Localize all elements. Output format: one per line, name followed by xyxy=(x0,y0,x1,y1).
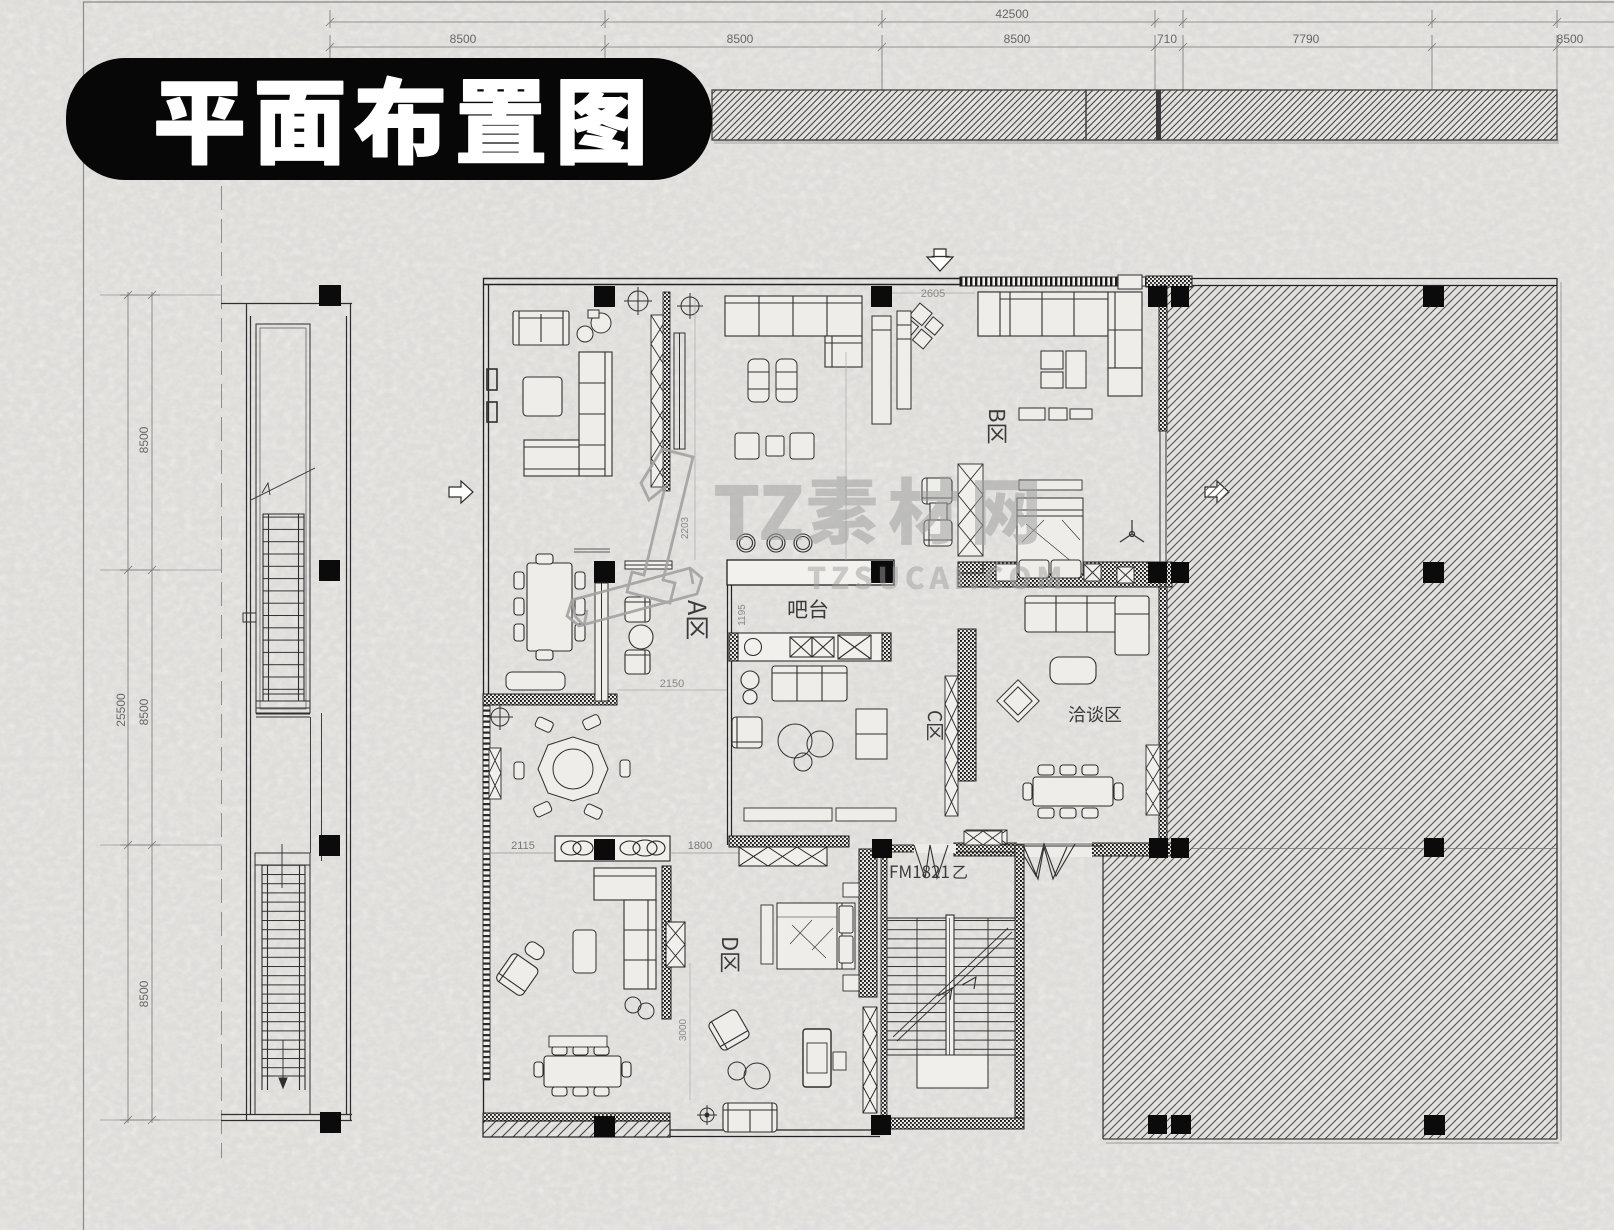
svg-text:2150: 2150 xyxy=(660,678,684,690)
svg-text:8500: 8500 xyxy=(450,32,477,46)
svg-text:25500: 25500 xyxy=(114,693,128,727)
svg-text:1195: 1195 xyxy=(737,604,748,626)
svg-text:710: 710 xyxy=(1157,32,1177,46)
svg-text:2115: 2115 xyxy=(511,840,535,852)
svg-text:8500: 8500 xyxy=(137,698,151,725)
svg-text:42500: 42500 xyxy=(995,7,1029,21)
svg-text:8500: 8500 xyxy=(727,32,754,46)
svg-text:7790: 7790 xyxy=(1293,32,1320,46)
svg-text:8500: 8500 xyxy=(1004,32,1031,46)
svg-text:1800: 1800 xyxy=(688,840,712,852)
svg-text:8500: 8500 xyxy=(1557,32,1584,46)
svg-text:2203: 2203 xyxy=(680,516,691,539)
svg-text:8500: 8500 xyxy=(137,980,151,1007)
svg-text:3000: 3000 xyxy=(678,1018,689,1041)
svg-text:8500: 8500 xyxy=(137,426,151,453)
svg-text:2605: 2605 xyxy=(921,288,945,300)
